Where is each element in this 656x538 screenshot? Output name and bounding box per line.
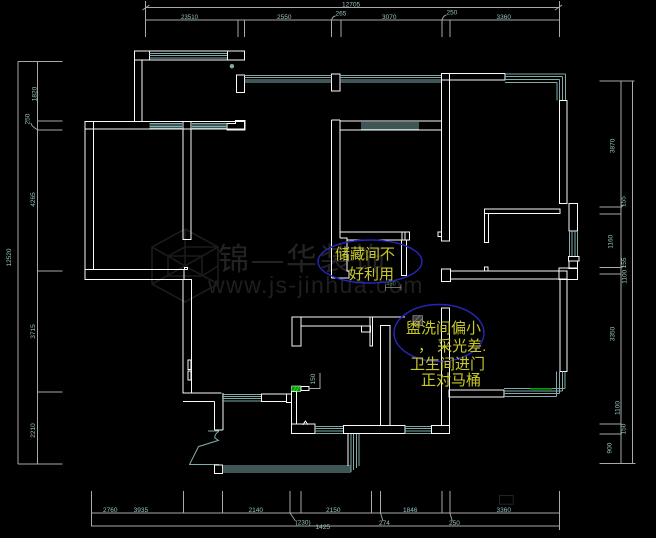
svg-text:1100: 1100 (615, 401, 622, 415)
svg-text:12705: 12705 (342, 2, 360, 9)
svg-text:储藏间不: 储藏间不 (335, 246, 395, 263)
svg-text:150: 150 (621, 423, 628, 434)
svg-text:(230): (230) (296, 520, 311, 527)
svg-text:12520: 12520 (6, 248, 13, 266)
svg-text:， 采光差.: ， 采光差. (418, 338, 486, 355)
svg-text:3935: 3935 (134, 507, 149, 514)
svg-text:23510: 23510 (181, 14, 198, 21)
svg-text:155: 155 (621, 196, 628, 207)
svg-text:3715: 3715 (30, 324, 37, 339)
svg-text:3360: 3360 (497, 507, 512, 514)
svg-text:2150: 2150 (326, 507, 341, 514)
svg-text:好利用: 好利用 (349, 266, 394, 283)
svg-text:2550: 2550 (277, 14, 292, 21)
svg-text:3350: 3350 (610, 326, 617, 341)
svg-text:250: 250 (25, 113, 32, 124)
svg-text:3070: 3070 (382, 14, 397, 21)
svg-text:盥洗间偏小: 盥洗间偏小 (406, 320, 481, 337)
svg-text:1846: 1846 (403, 507, 418, 514)
svg-text:2140: 2140 (249, 507, 264, 514)
svg-text:3360: 3360 (497, 14, 512, 21)
svg-text:2760: 2760 (103, 507, 118, 514)
svg-text:3870: 3870 (609, 138, 616, 153)
svg-text:卫生间进门: 卫生间进门 (410, 356, 485, 373)
svg-text:900: 900 (606, 442, 613, 453)
svg-text:250: 250 (449, 520, 460, 527)
svg-text:1820: 1820 (32, 86, 39, 101)
svg-text:1160: 1160 (607, 234, 614, 248)
svg-text:4265: 4265 (30, 192, 37, 207)
svg-text:1100: 1100 (621, 269, 628, 283)
svg-text:1425: 1425 (316, 524, 331, 531)
svg-text:265: 265 (336, 11, 347, 18)
svg-text:250: 250 (447, 10, 458, 17)
svg-text:2210: 2210 (30, 423, 37, 438)
svg-text:274: 274 (379, 520, 390, 527)
svg-text:正对马桶: 正对马桶 (421, 372, 481, 389)
svg-text:155: 155 (621, 257, 628, 268)
svg-text:150: 150 (310, 373, 317, 384)
